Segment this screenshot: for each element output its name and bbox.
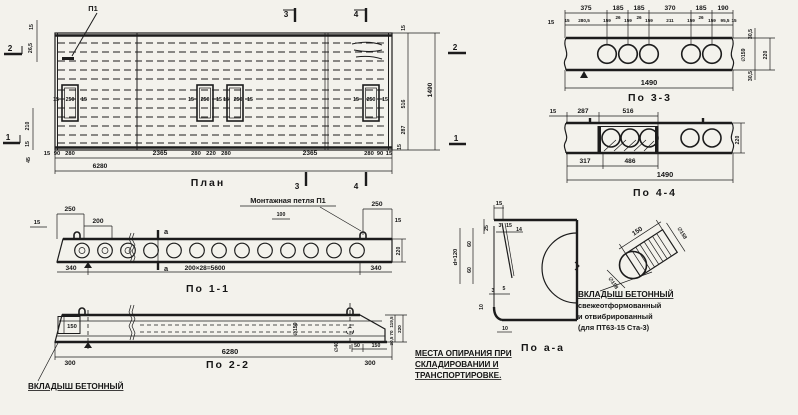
svg-text:317: 317 xyxy=(579,158,590,165)
svg-text:280: 280 xyxy=(191,151,201,157)
svg-text:70: 70 xyxy=(389,330,394,336)
svg-text:200×28=5600: 200×28=5600 xyxy=(185,265,226,272)
svg-text:159: 159 xyxy=(603,18,611,23)
svg-text:26: 26 xyxy=(636,15,642,20)
svg-text:3: 3 xyxy=(499,223,502,229)
svg-text:10: 10 xyxy=(502,326,508,332)
svg-text:250: 250 xyxy=(66,97,75,103)
svg-text:15: 15 xyxy=(386,151,393,157)
svg-text:45: 45 xyxy=(26,157,32,163)
svg-text:287: 287 xyxy=(401,126,407,135)
svg-text:185: 185 xyxy=(695,5,706,12)
s44-title: По 4-4 xyxy=(633,187,677,199)
svg-text:15: 15 xyxy=(401,25,407,31)
svg-text:200: 200 xyxy=(92,218,103,225)
svg-text:25: 25 xyxy=(484,225,490,231)
s22-title: По 2-2 xyxy=(206,359,250,371)
svg-text:119,5: 119,5 xyxy=(389,316,394,328)
svg-text:2365: 2365 xyxy=(153,150,168,157)
svg-text:(для ПТ63-15 Ста-3): (для ПТ63-15 Ста-3) xyxy=(578,323,650,332)
svg-text:3: 3 xyxy=(492,288,495,294)
svg-text:Места опирания при: Места опирания при xyxy=(415,349,512,358)
plan-hidden-lines xyxy=(58,43,388,143)
svg-text:6280: 6280 xyxy=(222,347,238,356)
insert-detail: 150 ∅158 ∅158 Вкладыш бетонный свежеотфо… xyxy=(578,207,693,332)
support-triangle xyxy=(580,71,588,78)
plan-bottom-dims: 15 90 280 2365 280 220 280 2365 280 90 1… xyxy=(44,150,393,174)
svg-text:4: 4 xyxy=(354,182,359,191)
svg-text:∅159: ∅159 xyxy=(293,322,299,335)
svg-text:486: 486 xyxy=(624,158,635,165)
svg-text:300: 300 xyxy=(64,360,75,367)
svg-text:3: 3 xyxy=(295,182,300,191)
svg-text:1: 1 xyxy=(6,133,11,142)
svg-text:2: 2 xyxy=(8,44,13,53)
hole-arc xyxy=(542,233,577,303)
svg-text:∅158: ∅158 xyxy=(607,276,619,290)
svg-text:15: 15 xyxy=(731,18,737,23)
svg-text:d=120: d=120 xyxy=(453,249,459,266)
svg-text:280: 280 xyxy=(221,151,231,157)
svg-text:516: 516 xyxy=(622,108,633,115)
svg-text:1490: 1490 xyxy=(641,78,657,87)
svg-text:100: 100 xyxy=(277,212,286,218)
plan-title: План xyxy=(191,177,225,189)
svg-text:∅159: ∅159 xyxy=(741,48,747,61)
svg-text:159: 159 xyxy=(624,18,632,23)
svg-text:150: 150 xyxy=(631,226,644,238)
svg-text:5: 5 xyxy=(503,286,506,292)
svg-text:95,5: 95,5 xyxy=(721,18,730,23)
svg-text:250: 250 xyxy=(234,97,243,103)
svg-text:211: 211 xyxy=(666,18,674,23)
svg-text:90: 90 xyxy=(54,151,60,157)
svg-text:220: 220 xyxy=(396,247,402,256)
s11-title: По 1-1 xyxy=(186,283,230,295)
s44-hatch xyxy=(604,140,654,151)
svg-text:250: 250 xyxy=(367,97,376,103)
svg-text:15: 15 xyxy=(564,18,570,23)
svg-text:250: 250 xyxy=(371,201,382,208)
svg-text:15: 15 xyxy=(53,97,59,103)
svg-text:250: 250 xyxy=(64,206,75,213)
svg-text:50: 50 xyxy=(354,343,360,349)
svg-text:30,5: 30,5 xyxy=(748,71,754,81)
svg-text:15: 15 xyxy=(25,141,31,147)
section-4-4: 15 287 516 317 486 1490 220 По 4-4 xyxy=(549,108,745,199)
svg-text:2: 2 xyxy=(453,43,458,52)
svg-text:26: 26 xyxy=(698,15,704,20)
blueprint-page: 15 250 15 15 250 15 15 250 15 15 250 15 … xyxy=(0,0,798,415)
svg-text:1490: 1490 xyxy=(657,170,673,179)
svg-text:30,5: 30,5 xyxy=(389,336,394,345)
svg-text:6280: 6280 xyxy=(93,163,108,170)
svg-text:30,5: 30,5 xyxy=(748,29,754,39)
svg-text:60: 60 xyxy=(467,267,473,273)
s44-holes xyxy=(602,129,721,147)
svg-text:150: 150 xyxy=(372,343,381,349)
s33-title: По 3-3 xyxy=(628,92,672,104)
svg-text:150: 150 xyxy=(67,324,77,330)
svg-text:15: 15 xyxy=(395,218,402,224)
svg-text:и отвибрированный: и отвибрированный xyxy=(578,312,653,321)
svg-text:1: 1 xyxy=(454,134,459,143)
svg-text:190: 190 xyxy=(717,5,728,12)
svg-text:15: 15 xyxy=(548,20,555,26)
support-note: Места опирания при складировании и транс… xyxy=(415,349,512,380)
svg-text:10: 10 xyxy=(479,304,485,310)
svg-text:15: 15 xyxy=(34,220,41,226)
plan-left-dims: 15 26,5 210 15 45 xyxy=(25,20,37,163)
plan-right-dims: 15 516 287 15 1490 xyxy=(392,25,440,150)
svg-text:15: 15 xyxy=(550,109,557,115)
svg-text:1490: 1490 xyxy=(427,82,434,97)
svg-text:∅158: ∅158 xyxy=(676,226,688,240)
svg-text:280: 280 xyxy=(364,151,374,157)
section-a-a: 15 3 15 14 25 60 60 d=120 3 5 10 10 По а… xyxy=(453,201,579,354)
cut-a-top: а xyxy=(164,227,169,236)
svg-text:∅40: ∅40 xyxy=(334,342,340,352)
svg-text:287: 287 xyxy=(577,108,588,115)
svg-text:свежеотформованный: свежеотформованный xyxy=(578,301,662,310)
s11-holes xyxy=(75,243,365,258)
svg-text:220: 220 xyxy=(763,51,769,60)
svg-text:4: 4 xyxy=(354,10,359,19)
svg-text:185: 185 xyxy=(633,5,644,12)
svg-text:26,5: 26,5 xyxy=(28,43,34,53)
s33-dims: 375 185 185 370 185 190 15 280,5 159 26 … xyxy=(548,5,775,91)
svg-text:15: 15 xyxy=(29,24,35,30)
svg-text:15: 15 xyxy=(506,223,512,229)
svg-text:159: 159 xyxy=(708,18,716,23)
insert-label: Вкладыш бетонный xyxy=(28,380,124,391)
svg-text:159: 159 xyxy=(645,18,653,23)
svg-text:159: 159 xyxy=(687,18,695,23)
svg-text:90: 90 xyxy=(377,151,383,157)
svg-text:220: 220 xyxy=(397,325,402,333)
svg-text:340: 340 xyxy=(370,265,381,272)
svg-text:2365: 2365 xyxy=(303,150,318,157)
s33-holes xyxy=(598,45,722,64)
svg-text:220: 220 xyxy=(206,151,216,157)
blueprint-canvas: 15 250 15 15 250 15 15 250 15 15 250 15 … xyxy=(0,0,798,415)
svg-text:220: 220 xyxy=(735,136,741,145)
svg-text:60: 60 xyxy=(467,241,473,247)
svg-text:Вкладыш бетонный: Вкладыш бетонный xyxy=(578,288,674,299)
plan-view: 15 250 15 15 250 15 15 250 15 15 250 15 … xyxy=(3,4,466,191)
svg-text:15: 15 xyxy=(247,97,253,103)
section-2-2: 150 ∅159 ∅40 300 6280 50 150 300 119,5 xyxy=(28,303,407,391)
svg-text:340: 340 xyxy=(65,265,76,272)
svg-text:375: 375 xyxy=(580,5,591,12)
svg-text:15: 15 xyxy=(216,97,222,103)
svg-text:3: 3 xyxy=(284,10,289,19)
svg-text:15: 15 xyxy=(44,151,51,157)
insert-caption: Вкладыш бетонный свежеотформованный и от… xyxy=(578,288,674,332)
svg-text:185: 185 xyxy=(612,5,623,12)
svg-text:транспортировке.: транспортировке. xyxy=(415,371,501,380)
svg-text:15: 15 xyxy=(223,97,229,103)
svg-text:26: 26 xyxy=(615,15,621,20)
svg-text:250: 250 xyxy=(201,97,210,103)
svg-text:15: 15 xyxy=(353,97,359,103)
loop-label: Монтажная петля П1 xyxy=(250,196,326,205)
plan-opening-dims: 15 250 15 15 250 15 15 250 15 15 250 15 xyxy=(53,97,388,103)
svg-text:15: 15 xyxy=(81,97,87,103)
svg-text:300: 300 xyxy=(364,360,375,367)
svg-text:15: 15 xyxy=(188,97,194,103)
svg-text:15: 15 xyxy=(382,97,388,103)
svg-text:280: 280 xyxy=(65,151,75,157)
svg-text:516: 516 xyxy=(401,100,407,109)
svg-text:складировании и: складировании и xyxy=(415,360,499,369)
p1-callout: П1 xyxy=(88,4,97,13)
section-1-1: а а 15 250 200 100 250 15 340 200×28=560… xyxy=(30,196,406,295)
section-3-3: 375 185 185 370 185 190 15 280,5 159 26 … xyxy=(548,5,775,104)
svg-text:210: 210 xyxy=(25,122,31,131)
saa-title: По а-а xyxy=(521,342,565,354)
svg-text:280,5: 280,5 xyxy=(578,18,590,23)
plan-blockouts xyxy=(62,85,379,121)
svg-text:15: 15 xyxy=(496,201,503,207)
svg-text:15: 15 xyxy=(397,144,403,150)
svg-text:370: 370 xyxy=(664,5,675,12)
